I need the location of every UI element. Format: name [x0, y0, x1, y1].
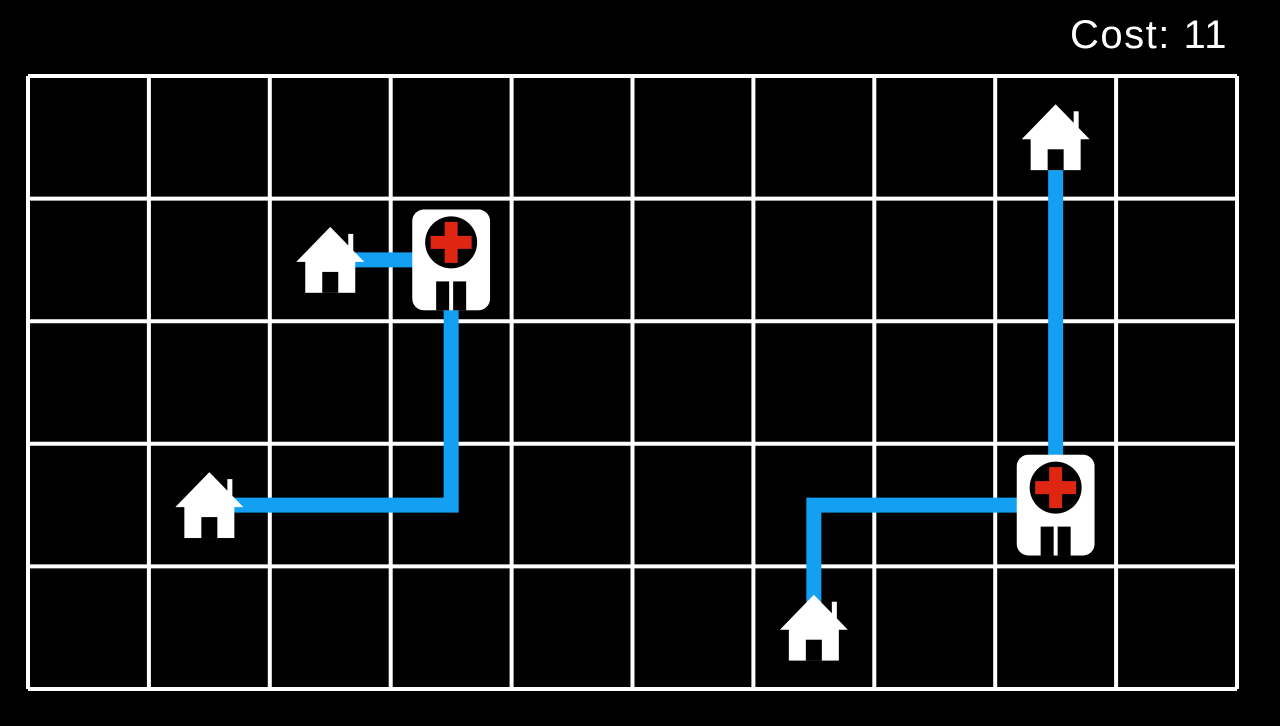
hospital-icon[interactable] — [412, 209, 490, 310]
house-icon[interactable] — [175, 472, 243, 538]
game-board[interactable] — [0, 0, 1280, 726]
hospital-icon[interactable] — [1017, 455, 1095, 556]
house-icon[interactable] — [1022, 104, 1090, 170]
cost-label: Cost: 11 — [1070, 13, 1228, 58]
game-stage: Cost: 11 — [0, 0, 1280, 726]
entities — [175, 104, 1094, 660]
house-icon[interactable] — [296, 227, 364, 293]
house-icon[interactable] — [780, 595, 848, 661]
